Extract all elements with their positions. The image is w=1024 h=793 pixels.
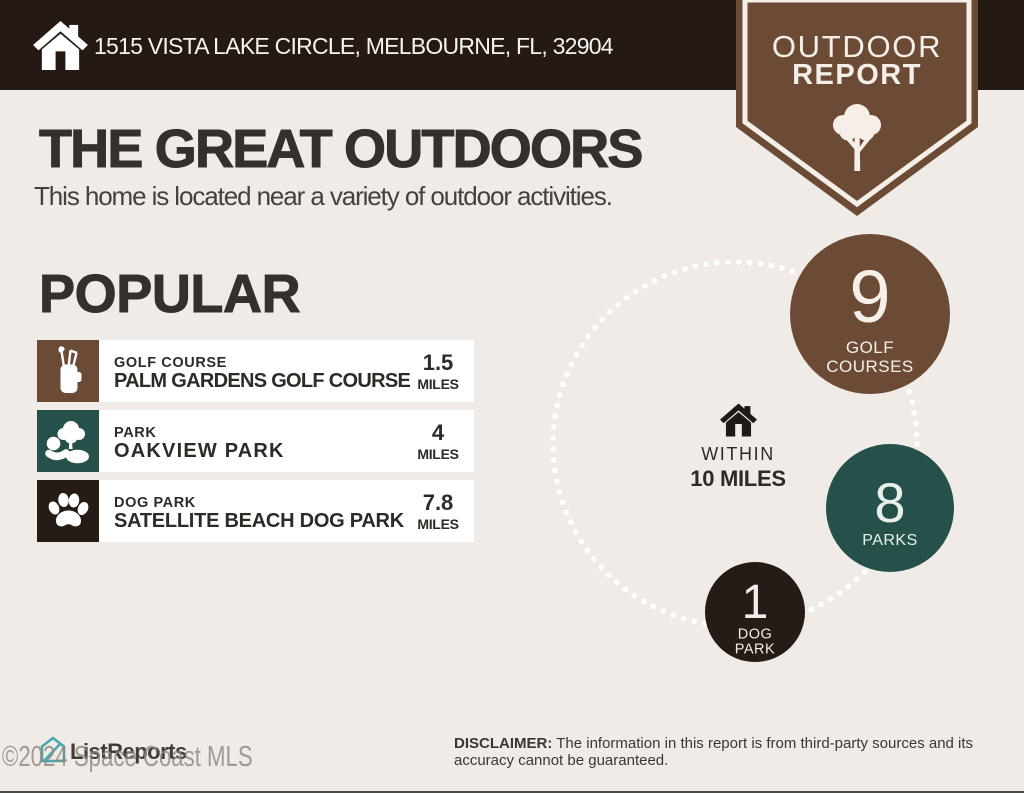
svg-text:1: 1: [742, 576, 769, 629]
svg-text:GOLF: GOLF: [846, 338, 894, 357]
svg-text:DOG: DOG: [738, 627, 773, 643]
svg-text:PARKS: PARKS: [862, 532, 918, 549]
svg-text:REPORT: REPORT: [792, 59, 922, 91]
svg-text:COURSES: COURSES: [826, 357, 914, 376]
svg-text:8: 8: [874, 471, 905, 534]
svg-text:PARK: PARK: [735, 642, 775, 658]
svg-text:9: 9: [849, 255, 890, 338]
